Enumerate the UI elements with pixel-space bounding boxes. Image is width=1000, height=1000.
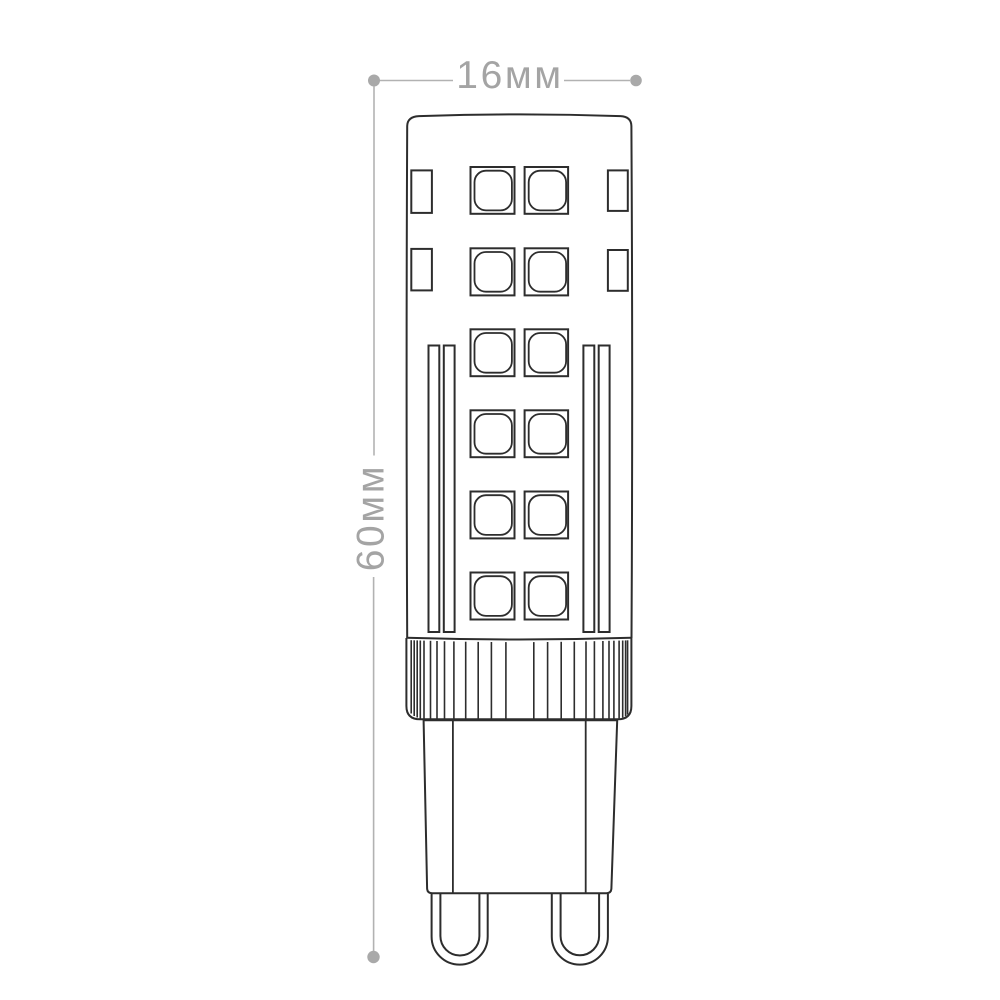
svg-text:60мм: 60мм bbox=[350, 464, 393, 571]
svg-text:16мм: 16мм bbox=[456, 54, 563, 97]
